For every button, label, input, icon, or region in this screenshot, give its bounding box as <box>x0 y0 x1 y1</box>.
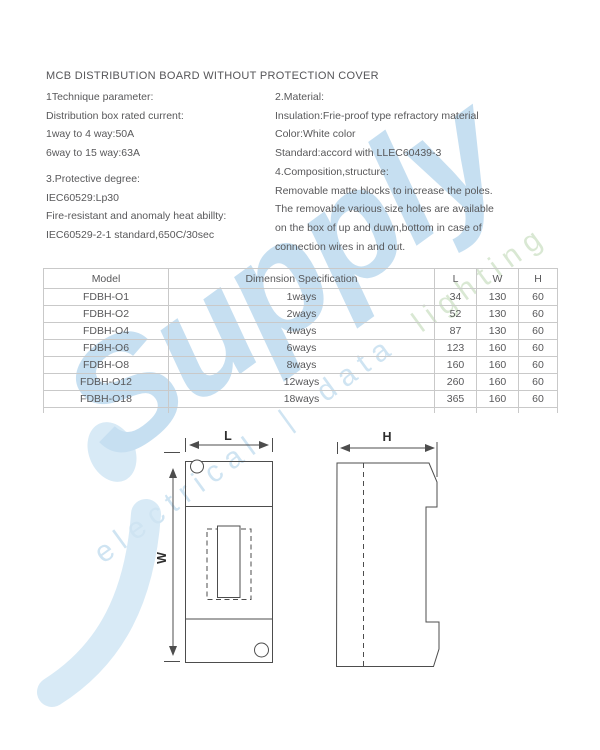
dimension-h: H <box>338 430 438 477</box>
technical-drawings: L W H <box>0 0 600 750</box>
side-view-drawing <box>337 463 440 667</box>
dimension-l: L <box>186 429 273 452</box>
dim-label-h: H <box>382 430 391 444</box>
mounting-hole-bottom <box>255 643 269 657</box>
window-cutout <box>218 526 241 598</box>
spec-sheet: MCB DISTRIBUTION BOARD WITHOUT PROTECTIO… <box>0 0 600 750</box>
front-view-drawing <box>186 460 273 663</box>
dim-label-w: W <box>155 552 169 564</box>
dim-label-l: L <box>224 429 232 443</box>
dimension-w: W <box>155 453 180 662</box>
mounting-hole-top <box>191 460 204 473</box>
